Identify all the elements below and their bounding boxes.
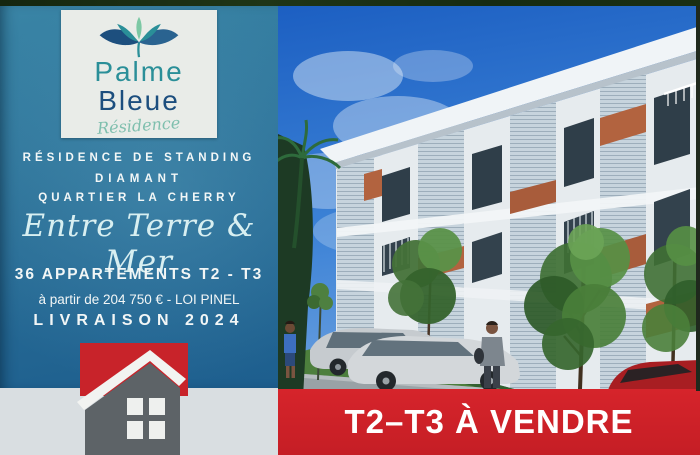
billboard-right-edge bbox=[696, 6, 700, 391]
house-icon bbox=[63, 340, 233, 455]
logo-card: Palme Bleue Résidence bbox=[61, 10, 217, 138]
brand-name-palme: Palme bbox=[94, 58, 183, 87]
heading-standing: RÉSIDENCE DE STANDING bbox=[0, 152, 278, 164]
info-panel: Palme Bleue Résidence RÉSIDENCE DE STAND… bbox=[0, 6, 278, 388]
apartments-line: 36 APPARTEMENTS T2 - T3 bbox=[0, 266, 278, 284]
palm-flower-icon bbox=[93, 16, 185, 58]
brand-subtitle: Résidence bbox=[97, 113, 181, 138]
architectural-rendering bbox=[278, 6, 700, 455]
billboard-photo: Palme Bleue Résidence RÉSIDENCE DE STAND… bbox=[0, 0, 700, 455]
heading-diamant: DIAMANT bbox=[0, 173, 278, 185]
brand-name-bleue: Bleue bbox=[98, 87, 180, 116]
sale-banner: T2–T3 À VENDRE bbox=[278, 389, 700, 455]
price-line: à partir de 204 750 € - LOI PINEL bbox=[0, 292, 278, 307]
delivery-line: LIVRAISON 2024 bbox=[0, 312, 278, 330]
sale-banner-text: T2–T3 À VENDRE bbox=[344, 403, 633, 441]
heading-quartier: QUARTIER LA CHERRY bbox=[0, 192, 278, 204]
